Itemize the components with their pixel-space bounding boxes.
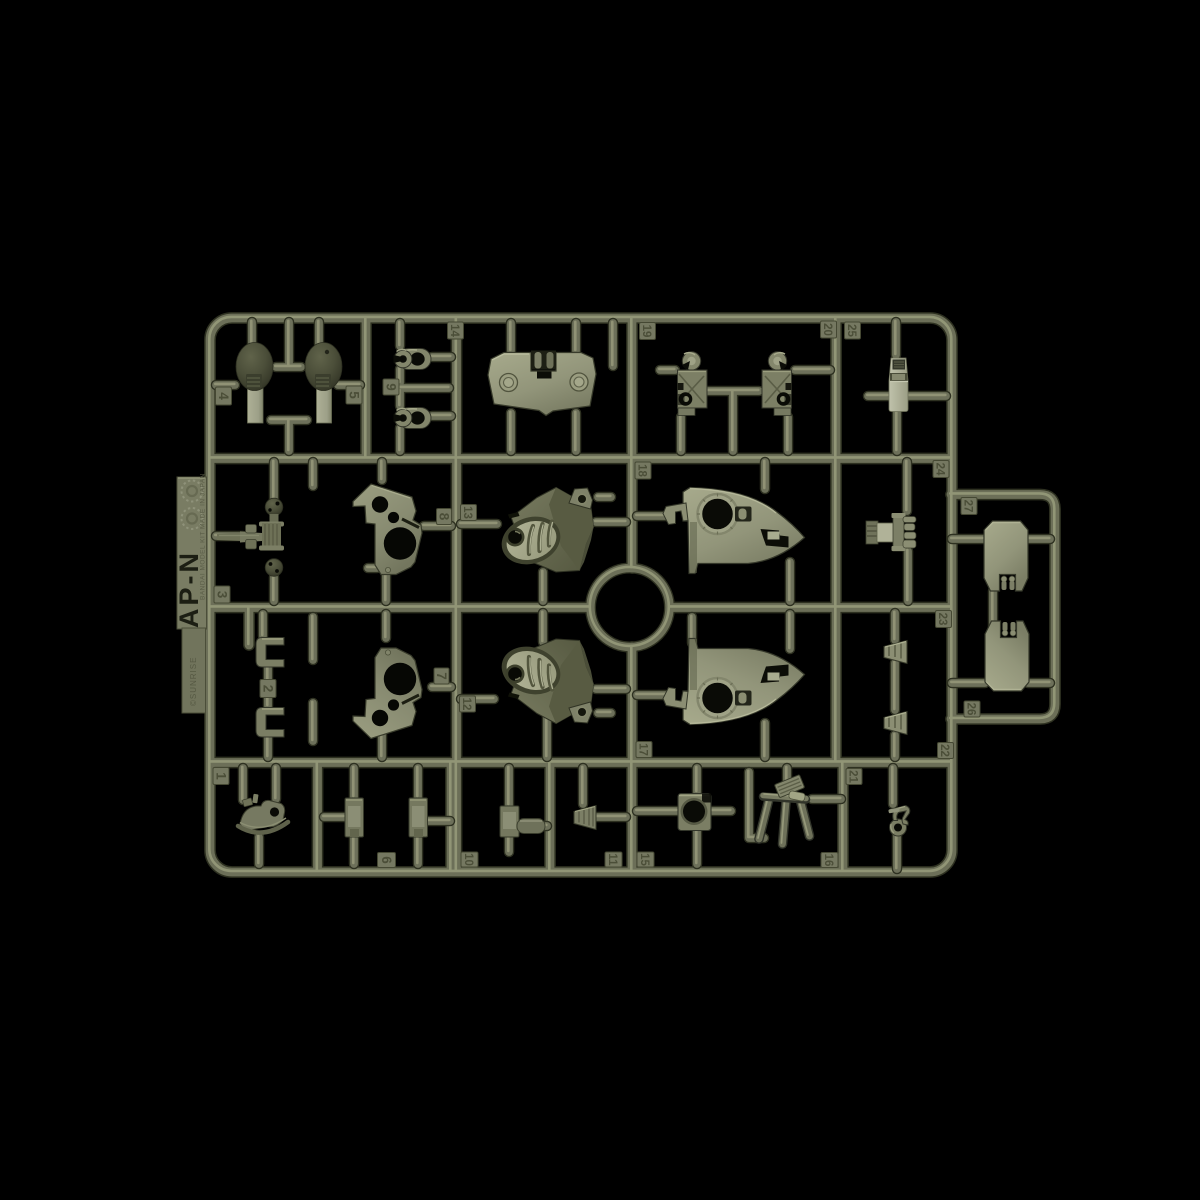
svg-text:1: 1: [213, 772, 228, 780]
svg-text:9: 9: [383, 383, 398, 391]
svg-text:10: 10: [462, 853, 474, 866]
svg-text:11: 11: [606, 853, 618, 866]
svg-text:16: 16: [822, 854, 834, 867]
svg-text:18: 18: [635, 464, 647, 477]
svg-text:14: 14: [448, 324, 460, 337]
svg-text:27: 27: [961, 500, 973, 513]
svg-text:8: 8: [436, 513, 451, 521]
svg-text:4: 4: [216, 392, 231, 400]
svg-text:12: 12: [460, 698, 472, 711]
svg-text:13: 13: [461, 506, 473, 519]
svg-text:15: 15: [638, 853, 650, 866]
svg-text:23: 23: [936, 613, 948, 626]
svg-text:5: 5: [346, 391, 361, 399]
svg-text:17: 17: [636, 743, 648, 756]
svg-text:©SUNRISE: ©SUNRISE: [189, 657, 198, 706]
svg-text:24: 24: [933, 463, 945, 476]
svg-text:20: 20: [821, 323, 833, 336]
svg-text:7: 7: [434, 672, 449, 680]
svg-text:6: 6: [379, 856, 394, 864]
svg-text:25: 25: [845, 324, 857, 337]
svg-text:BANDAI MODEL KIT MADE IN JAPAN: BANDAI MODEL KIT MADE IN JAPAN: [200, 473, 207, 600]
svg-text:22: 22: [938, 744, 950, 757]
svg-text:21: 21: [846, 770, 858, 783]
svg-text:3: 3: [214, 591, 229, 599]
svg-text:2: 2: [260, 685, 275, 693]
svg-text:26: 26: [964, 703, 976, 716]
svg-text:19: 19: [640, 325, 652, 338]
